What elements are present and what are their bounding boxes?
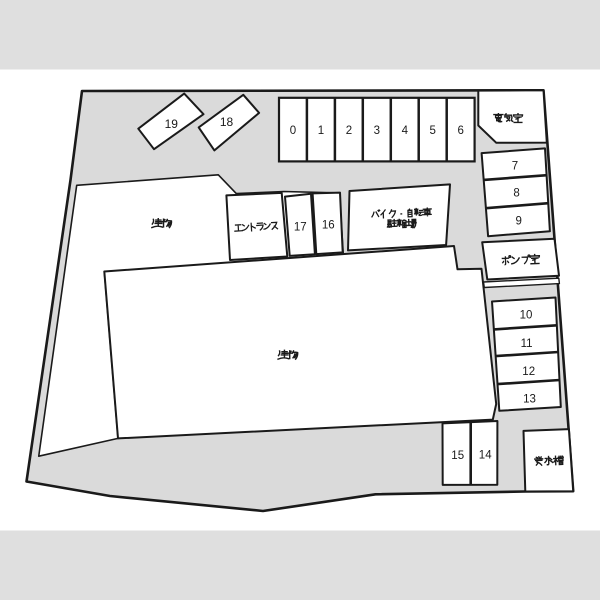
- svg-text:14: 14: [479, 449, 492, 461]
- svg-text:3: 3: [374, 125, 380, 137]
- svg-text:4: 4: [402, 125, 409, 137]
- svg-text:0: 0: [290, 125, 296, 137]
- svg-text:9: 9: [515, 216, 521, 228]
- svg-text:16: 16: [322, 220, 335, 232]
- svg-text:8: 8: [513, 188, 519, 200]
- svg-text:13: 13: [523, 394, 536, 406]
- svg-text:19: 19: [165, 117, 179, 131]
- svg-text:1: 1: [318, 125, 324, 137]
- svg-text:15: 15: [451, 450, 464, 462]
- svg-text:18: 18: [220, 115, 234, 129]
- svg-text:10: 10: [520, 310, 533, 322]
- svg-text:5: 5: [429, 125, 435, 137]
- svg-text:7: 7: [512, 160, 518, 172]
- svg-text:11: 11: [521, 338, 533, 350]
- svg-text:2: 2: [346, 125, 352, 137]
- svg-text:12: 12: [522, 366, 535, 378]
- svg-text:6: 6: [457, 125, 463, 137]
- svg-text:17: 17: [294, 221, 307, 233]
